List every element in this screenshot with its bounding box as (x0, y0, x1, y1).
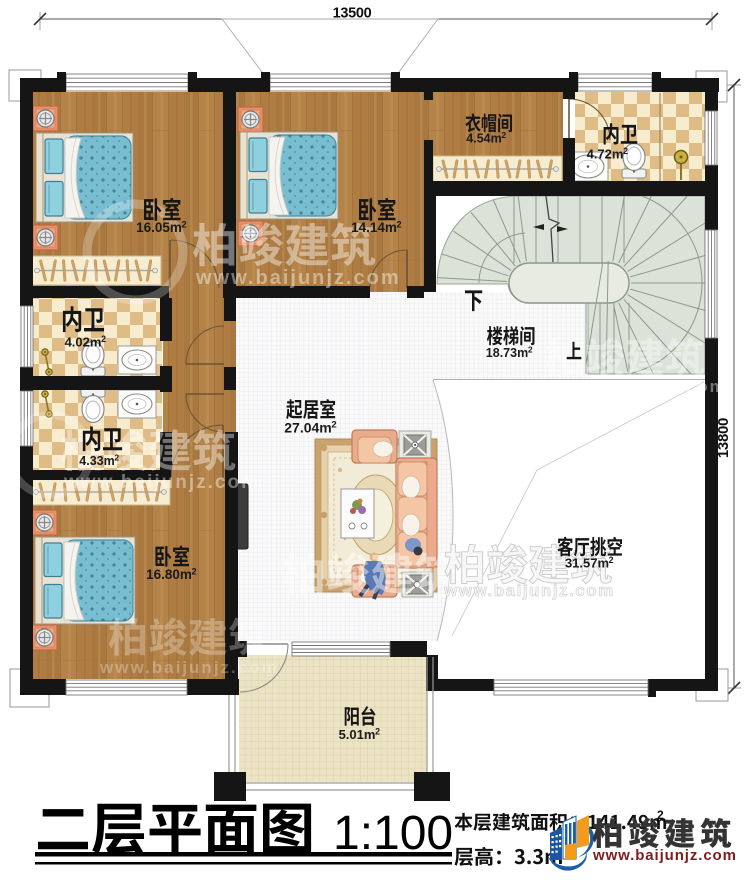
svg-text:2: 2 (101, 334, 106, 344)
svg-text:www.baijunjz.com: www.baijunjz.com (592, 847, 737, 864)
svg-text:2: 2 (375, 726, 380, 736)
svg-text:27.04m: 27.04m (284, 420, 331, 436)
svg-text:18.73m: 18.73m (486, 346, 528, 360)
svg-text:4.54m: 4.54m (466, 132, 501, 146)
svg-text:5.01m: 5.01m (339, 727, 376, 742)
svg-text:4.02m: 4.02m (65, 335, 102, 350)
svg-text:2: 2 (114, 453, 119, 463)
svg-text:2: 2 (182, 219, 187, 229)
svg-text:2: 2 (501, 130, 506, 140)
svg-text:www.baijunjz.com: www.baijunjz.com (443, 581, 615, 600)
svg-text:2: 2 (657, 808, 664, 822)
svg-text:16.05m: 16.05m (136, 220, 182, 235)
svg-text:14.14m: 14.14m (351, 220, 397, 235)
svg-text:2: 2 (623, 146, 628, 156)
svg-text:www.baijunjz.com: www.baijunjz.com (63, 472, 260, 493)
svg-text:31.57m: 31.57m (565, 556, 609, 571)
svg-text:2: 2 (397, 219, 402, 229)
svg-text:2: 2 (528, 345, 533, 355)
svg-text:4.72m: 4.72m (587, 147, 624, 162)
svg-text:www.baijunjz.com: www.baijunjz.com (547, 377, 727, 396)
svg-text:4.33m: 4.33m (79, 454, 114, 468)
svg-text:www.baijunjz.com: www.baijunjz.com (195, 267, 401, 289)
svg-text:2: 2 (609, 555, 614, 565)
svg-text:16.80m: 16.80m (146, 567, 192, 582)
svg-text:2: 2 (192, 566, 197, 576)
svg-text:2: 2 (331, 420, 336, 431)
svg-text:www.baijunjz.com: www.baijunjz.com (99, 658, 279, 677)
